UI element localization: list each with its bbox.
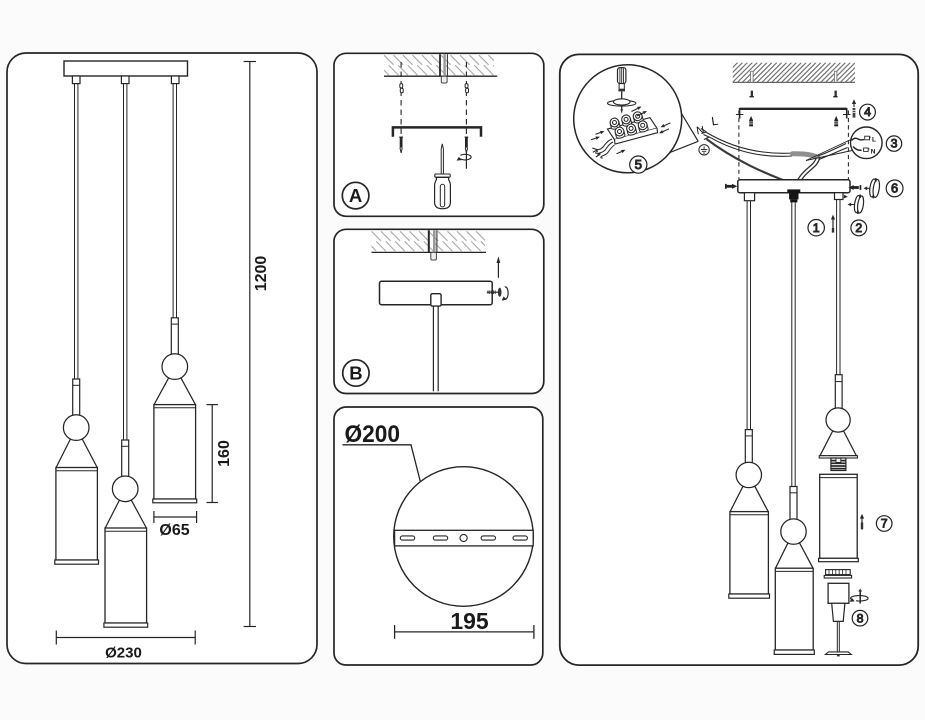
svg-text:1: 1: [813, 221, 820, 235]
svg-text:2: 2: [855, 221, 862, 235]
svg-text:Ø230: Ø230: [105, 645, 142, 662]
svg-text:1200: 1200: [253, 256, 270, 292]
svg-text:Ø200: Ø200: [345, 421, 401, 448]
svg-text:B: B: [349, 363, 362, 384]
svg-text:160: 160: [216, 440, 233, 467]
svg-text:7: 7: [881, 517, 888, 531]
svg-text:8: 8: [857, 611, 864, 625]
svg-text:4: 4: [864, 105, 871, 119]
svg-text:6: 6: [891, 181, 898, 196]
svg-text:3: 3: [891, 137, 898, 151]
svg-text:195: 195: [450, 608, 489, 634]
svg-text:N: N: [871, 149, 876, 156]
svg-text:A: A: [349, 185, 362, 206]
svg-text:Ø65: Ø65: [159, 522, 189, 539]
svg-text:5: 5: [635, 157, 642, 172]
svg-text:L: L: [872, 137, 876, 144]
